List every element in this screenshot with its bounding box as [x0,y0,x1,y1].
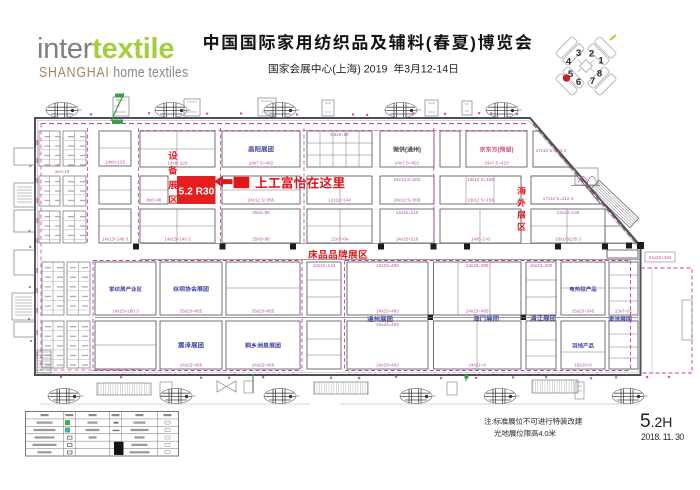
svg-text:24x23=483: 24x23=483 [466,309,489,314]
svg-text:17x12 S=164 3: 17x12 S=164 3 [536,148,567,153]
svg-text:14x13=140 3: 14x13=140 3 [164,237,191,242]
svg-text:(: ( [498,148,500,154]
svg-text:): ) [470,34,477,53]
svg-text:13x12 S=156: 13x12 S=156 [467,177,494,182]
svg-text:25x5=98: 25x5=98 [252,210,270,215]
svg-text:13x12 S=156: 13x12 S=156 [467,198,494,203]
svg-text:): ) [512,148,514,154]
svg-text:3: 3 [576,48,581,59]
svg-text:14x15=210: 14x15=210 [396,237,419,242]
svg-text:15x23=0: 15x23=0 [574,363,592,368]
svg-text:24x12 S=300: 24x12 S=300 [394,198,421,203]
svg-text:12-14: 12-14 [421,64,448,76]
svg-text:24x7 S=402: 24x7 S=402 [249,161,274,166]
svg-text:24x23=463: 24x23=463 [376,322,399,327]
svg-text:): ) [419,148,421,154]
svg-text:14x15=210: 14x15=210 [396,210,419,215]
svg-text:5.5x9=50: 5.5x9=50 [330,132,349,137]
svg-text:24x23=460: 24x23=460 [252,363,275,368]
svg-text:14x13=140 3: 14x13=140 3 [102,237,129,242]
svg-text:24x23=483: 24x23=483 [376,309,399,314]
svg-text:24x23=463: 24x23=463 [376,363,399,368]
svg-text:14x5-2=0: 14x5-2=0 [471,237,490,242]
svg-text::: : [491,417,493,426]
svg-text:13x10=130: 13x10=130 [557,210,580,215]
svg-text:6: 6 [576,77,581,88]
svg-text:10x23=200: 10x23=200 [530,263,553,268]
svg-text:12x12=144: 12x12=144 [313,263,336,268]
svg-text:24x12 S=300: 24x12 S=300 [394,177,421,182]
svg-text:13x7=91: 13x7=91 [615,309,633,314]
svg-text:5.2H: 5.2H [640,411,672,432]
svg-text:(: ( [405,148,407,154]
svg-text:4: 4 [566,57,572,68]
svg-text:24x23=483: 24x23=483 [649,255,672,260]
svg-text:(: ( [332,64,336,76]
svg-text:14x23=280 3: 14x23=280 3 [112,309,139,314]
svg-text:) 2019: ) 2019 [357,64,387,76]
svg-text:(: ( [426,34,433,53]
svg-text:24x7 S=420: 24x7 S=420 [484,161,509,166]
svg-text:14x9=126: 14x9=126 [105,160,125,165]
svg-text:24x21=4: 24x21=4 [469,363,487,368]
svg-text:1: 1 [598,56,604,67]
svg-text:5.2 R30: 5.2 R30 [179,187,215,198]
svg-text:24x23=455: 24x23=455 [180,363,203,368]
svg-text:17x12 S=212 3: 17x12 S=212 3 [543,196,574,201]
svg-text:2: 2 [589,49,594,60]
svg-text:12x7=84: 12x7=84 [331,237,349,242]
svg-text:4x4=16: 4x4=16 [55,169,70,174]
svg-text:2018. 11. 30: 2018. 11. 30 [641,432,684,442]
svg-text:8: 8 [597,69,603,80]
svg-text:24x7 S=402: 24x7 S=402 [395,161,420,166]
svg-text:3: 3 [404,64,410,76]
svg-text:25x5=98: 25x5=98 [252,237,270,242]
svg-text:26x23=455: 26x23=455 [180,309,203,314]
svg-text:24x23=483: 24x23=483 [376,263,399,268]
svg-text:15x23=345: 15x23=345 [572,309,595,314]
svg-text:26x23=455: 26x23=455 [252,309,275,314]
svg-text:8x6=48: 8x6=48 [147,198,162,203]
svg-text:7: 7 [590,76,595,87]
svg-text:13x10x135 3: 13x10x135 3 [555,237,581,242]
svg-text:13x23=299: 13x23=299 [466,263,489,268]
svg-text:24x12 S=355: 24x12 S=355 [248,198,275,203]
svg-text:14x9=126: 14x9=126 [168,161,188,166]
svg-text:4.0: 4.0 [538,429,548,438]
svg-text:12x12=144: 12x12=144 [328,198,351,203]
